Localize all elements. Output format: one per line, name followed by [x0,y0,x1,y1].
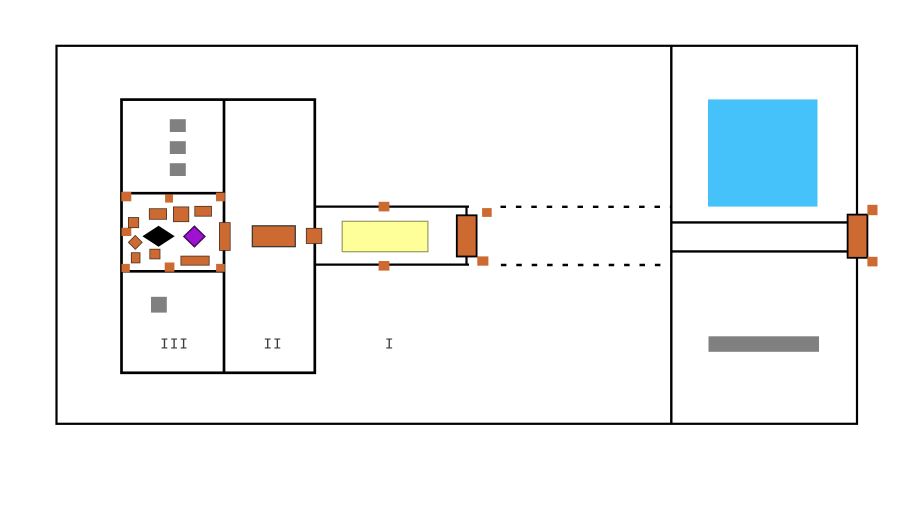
svg-text:I: I [385,338,394,354]
svg-text:III: III [160,338,189,354]
svg-text:II: II [263,338,282,354]
